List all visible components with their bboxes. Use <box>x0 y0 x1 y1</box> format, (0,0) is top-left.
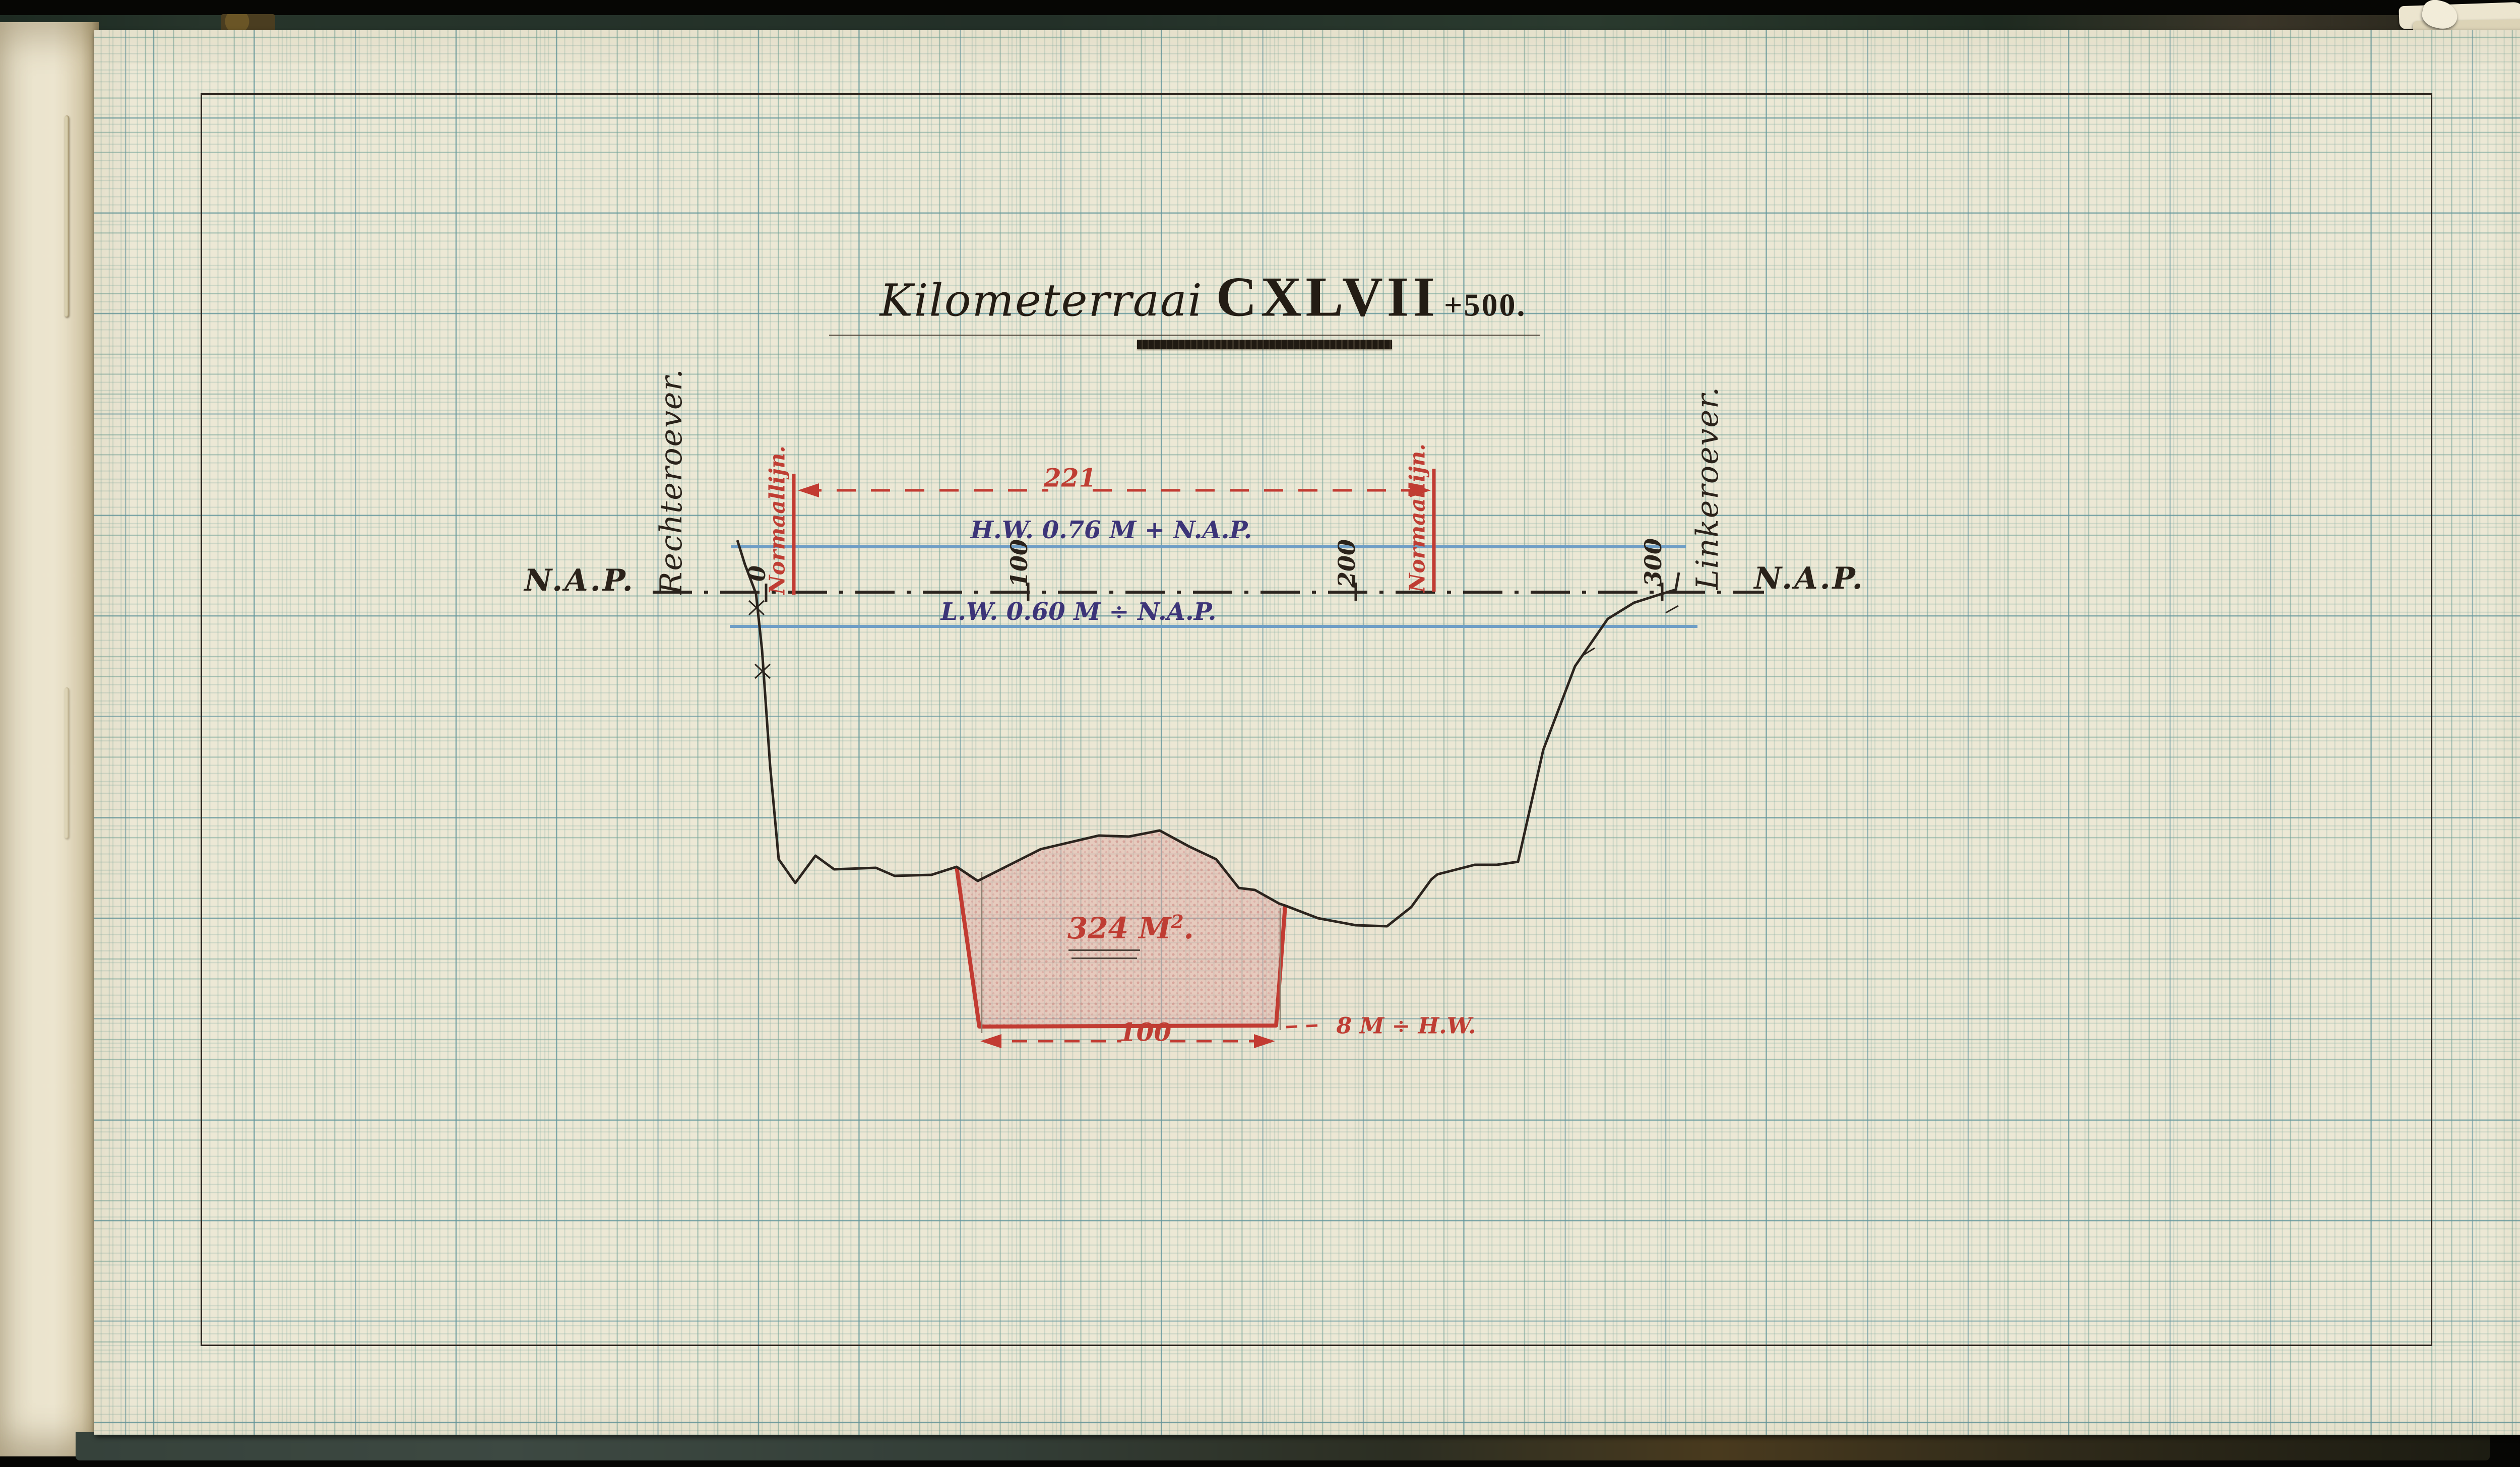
area-period: . <box>1184 911 1194 945</box>
nap-label-left: N.A.P. <box>524 563 635 598</box>
area-underline-1 <box>1068 949 1140 951</box>
datum-tick-0: 0 <box>743 565 771 582</box>
page-title: Kilometerraai CXLVII +500. <box>880 265 1527 330</box>
right-bank-label: Rechteroever. <box>654 368 689 594</box>
datum-tick-300: 300 <box>1640 538 1667 587</box>
normal-line-label-right: Normaallijn. <box>1405 443 1430 593</box>
datum-tick-100: 100 <box>1005 539 1033 588</box>
title-underline <box>829 335 1540 336</box>
profile-area-label: 324 M2. <box>1067 911 1194 945</box>
title-emphasis-bar <box>1137 340 1392 349</box>
book-scan-photo: Kilometerraai CXLVII +500. N.A.P. N.A.P.… <box>0 0 2520 1467</box>
area-underline-2 <box>1072 958 1137 959</box>
left-bank-label: Linkeroever. <box>1690 386 1725 590</box>
area-unit: M <box>1139 911 1171 945</box>
width-dimension-value: 221 <box>1044 463 1096 493</box>
title-roman-numeral: CXLVII <box>1216 265 1439 330</box>
low-water-label: L.W. 0.60 M ÷ N.A.P. <box>940 598 1216 626</box>
bottom-dimension-value: 100 <box>1119 1017 1171 1047</box>
depth-below-hw-label: 8 M ÷ H.W. <box>1337 1013 1476 1039</box>
nap-label-right: N.A.P. <box>1754 561 1864 596</box>
high-water-label: H.W. 0.76 M + N.A.P. <box>971 516 1252 544</box>
datum-tick-200: 200 <box>1333 539 1360 588</box>
area-value: 324 <box>1067 911 1128 945</box>
width-dimension-line <box>798 483 1431 497</box>
title-suffix: +500. <box>1444 287 1526 324</box>
cross-section-drawing <box>0 0 2520 1467</box>
area-superscript: 2 <box>1171 912 1183 933</box>
title-script-part: Kilometerraai <box>880 275 1203 327</box>
